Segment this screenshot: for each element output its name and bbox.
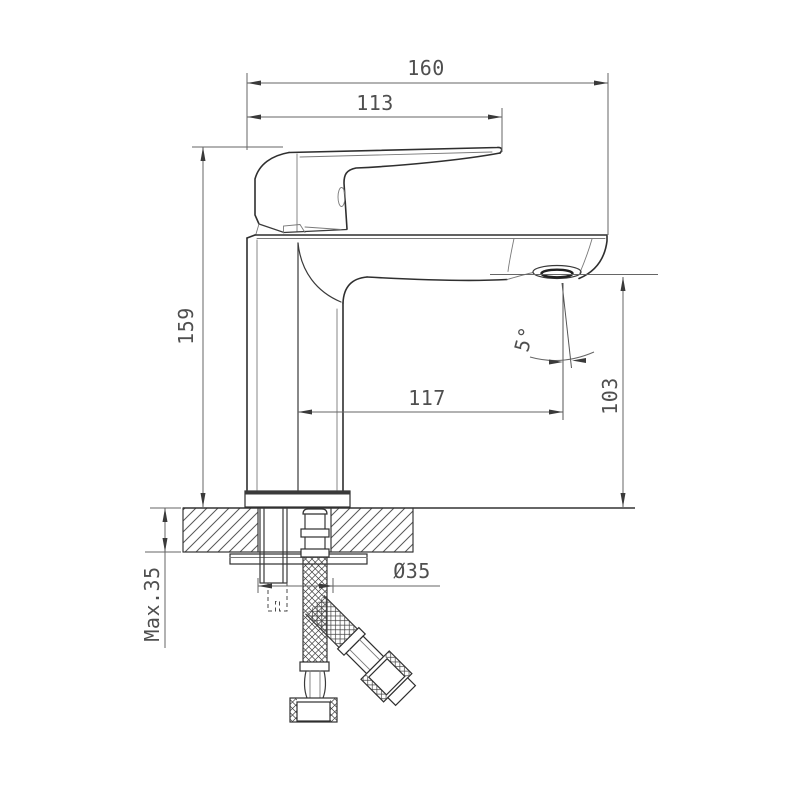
hose-tube-lines — [310, 671, 320, 698]
hose-nut-facet-right — [330, 698, 337, 722]
dim-113-arrow-left — [247, 115, 261, 120]
dim-max35-label: Max.35 — [140, 566, 164, 641]
cartridge-joint-lines — [256, 224, 341, 234]
hose-braid — [303, 557, 327, 663]
countertop-section — [183, 508, 635, 564]
aerator-outlet — [542, 270, 573, 278]
handle-pivot-detail — [338, 188, 345, 207]
dim-103-label: 103 — [598, 377, 622, 415]
base-plate — [245, 491, 350, 507]
hose-collar-upper — [301, 529, 329, 537]
dim-117-label: 117 — [408, 386, 446, 410]
hose-neck-upper — [305, 514, 325, 529]
dim-max35-arrow-top — [163, 508, 168, 522]
handle-blade-underside — [344, 153, 500, 229]
dimension-spout-height-103: 103 — [490, 275, 658, 508]
technical-drawing-canvas: 160 113 159 117 103 5° Ø35 — [0, 0, 800, 800]
countertop-hatch-left — [183, 508, 258, 552]
dim-160-arrow-right — [594, 81, 608, 86]
dim-117-arrow-right — [549, 410, 563, 415]
dimension-spout-reach-117: 117 — [298, 386, 563, 415]
dimension-handle-width-113: 113 — [247, 91, 502, 152]
dim-160-arrow-left — [247, 81, 261, 86]
shank-thread-lines — [260, 508, 287, 583]
base-plate-gasket — [245, 491, 350, 495]
spout-underside — [367, 277, 507, 280]
under-counter-washer — [230, 554, 367, 564]
dim-159-lines — [192, 147, 283, 507]
dim-159-arrow-bottom — [201, 493, 206, 507]
dimension-stream-angle-5deg: 5° — [509, 283, 594, 420]
dim-160-label: 160 — [407, 56, 445, 80]
dimension-max-thickness-35: Max.35 — [140, 508, 181, 648]
faucet-dimension-drawing: 160 113 159 117 103 5° Ø35 — [0, 0, 800, 800]
dim-159-label: 159 — [174, 307, 198, 345]
handle-hump-outline — [255, 153, 289, 225]
hose-neck-lower — [305, 537, 325, 549]
spout-front-contours — [508, 239, 592, 273]
dimension-overall-width-160: 160 — [247, 56, 608, 235]
dim-103-lines — [490, 275, 658, 508]
dim-103-arrow-bottom — [621, 493, 626, 507]
handle-base-line — [259, 224, 347, 233]
faucet-handle — [255, 147, 502, 234]
hose-rubber-tube — [305, 671, 326, 698]
spout-inner-corner — [343, 277, 367, 303]
handle-blade-inner-line — [300, 152, 492, 157]
dim-113-arrow-right — [488, 115, 502, 120]
countertop-hatch-right — [331, 508, 413, 552]
spout-front-edge — [579, 236, 607, 279]
hose-ferrule — [300, 662, 329, 671]
hose-nut-face — [297, 702, 330, 721]
hose-nut-facet-left — [290, 698, 297, 722]
body-top-left-corner — [247, 235, 255, 238]
hose-top-cap — [303, 509, 327, 514]
dimension-overall-height-159: 159 — [174, 147, 283, 507]
dim-d35-label: Ø35 — [393, 559, 431, 583]
dim-103-arrow-top — [621, 277, 626, 291]
dim-117-arrow-left — [298, 410, 312, 415]
dim-d35-arrow-left — [258, 584, 272, 589]
faucet-body — [245, 147, 607, 507]
dim-5deg-label: 5° — [509, 324, 539, 354]
neck-dome-curve — [298, 243, 341, 302]
dim-159-arrow-top — [201, 147, 206, 161]
dim-113-label: 113 — [356, 91, 394, 115]
dim-max35-arrow-bottom — [163, 538, 168, 552]
hose-collar-lower — [301, 549, 329, 557]
underside-to-outlet — [507, 273, 533, 280]
